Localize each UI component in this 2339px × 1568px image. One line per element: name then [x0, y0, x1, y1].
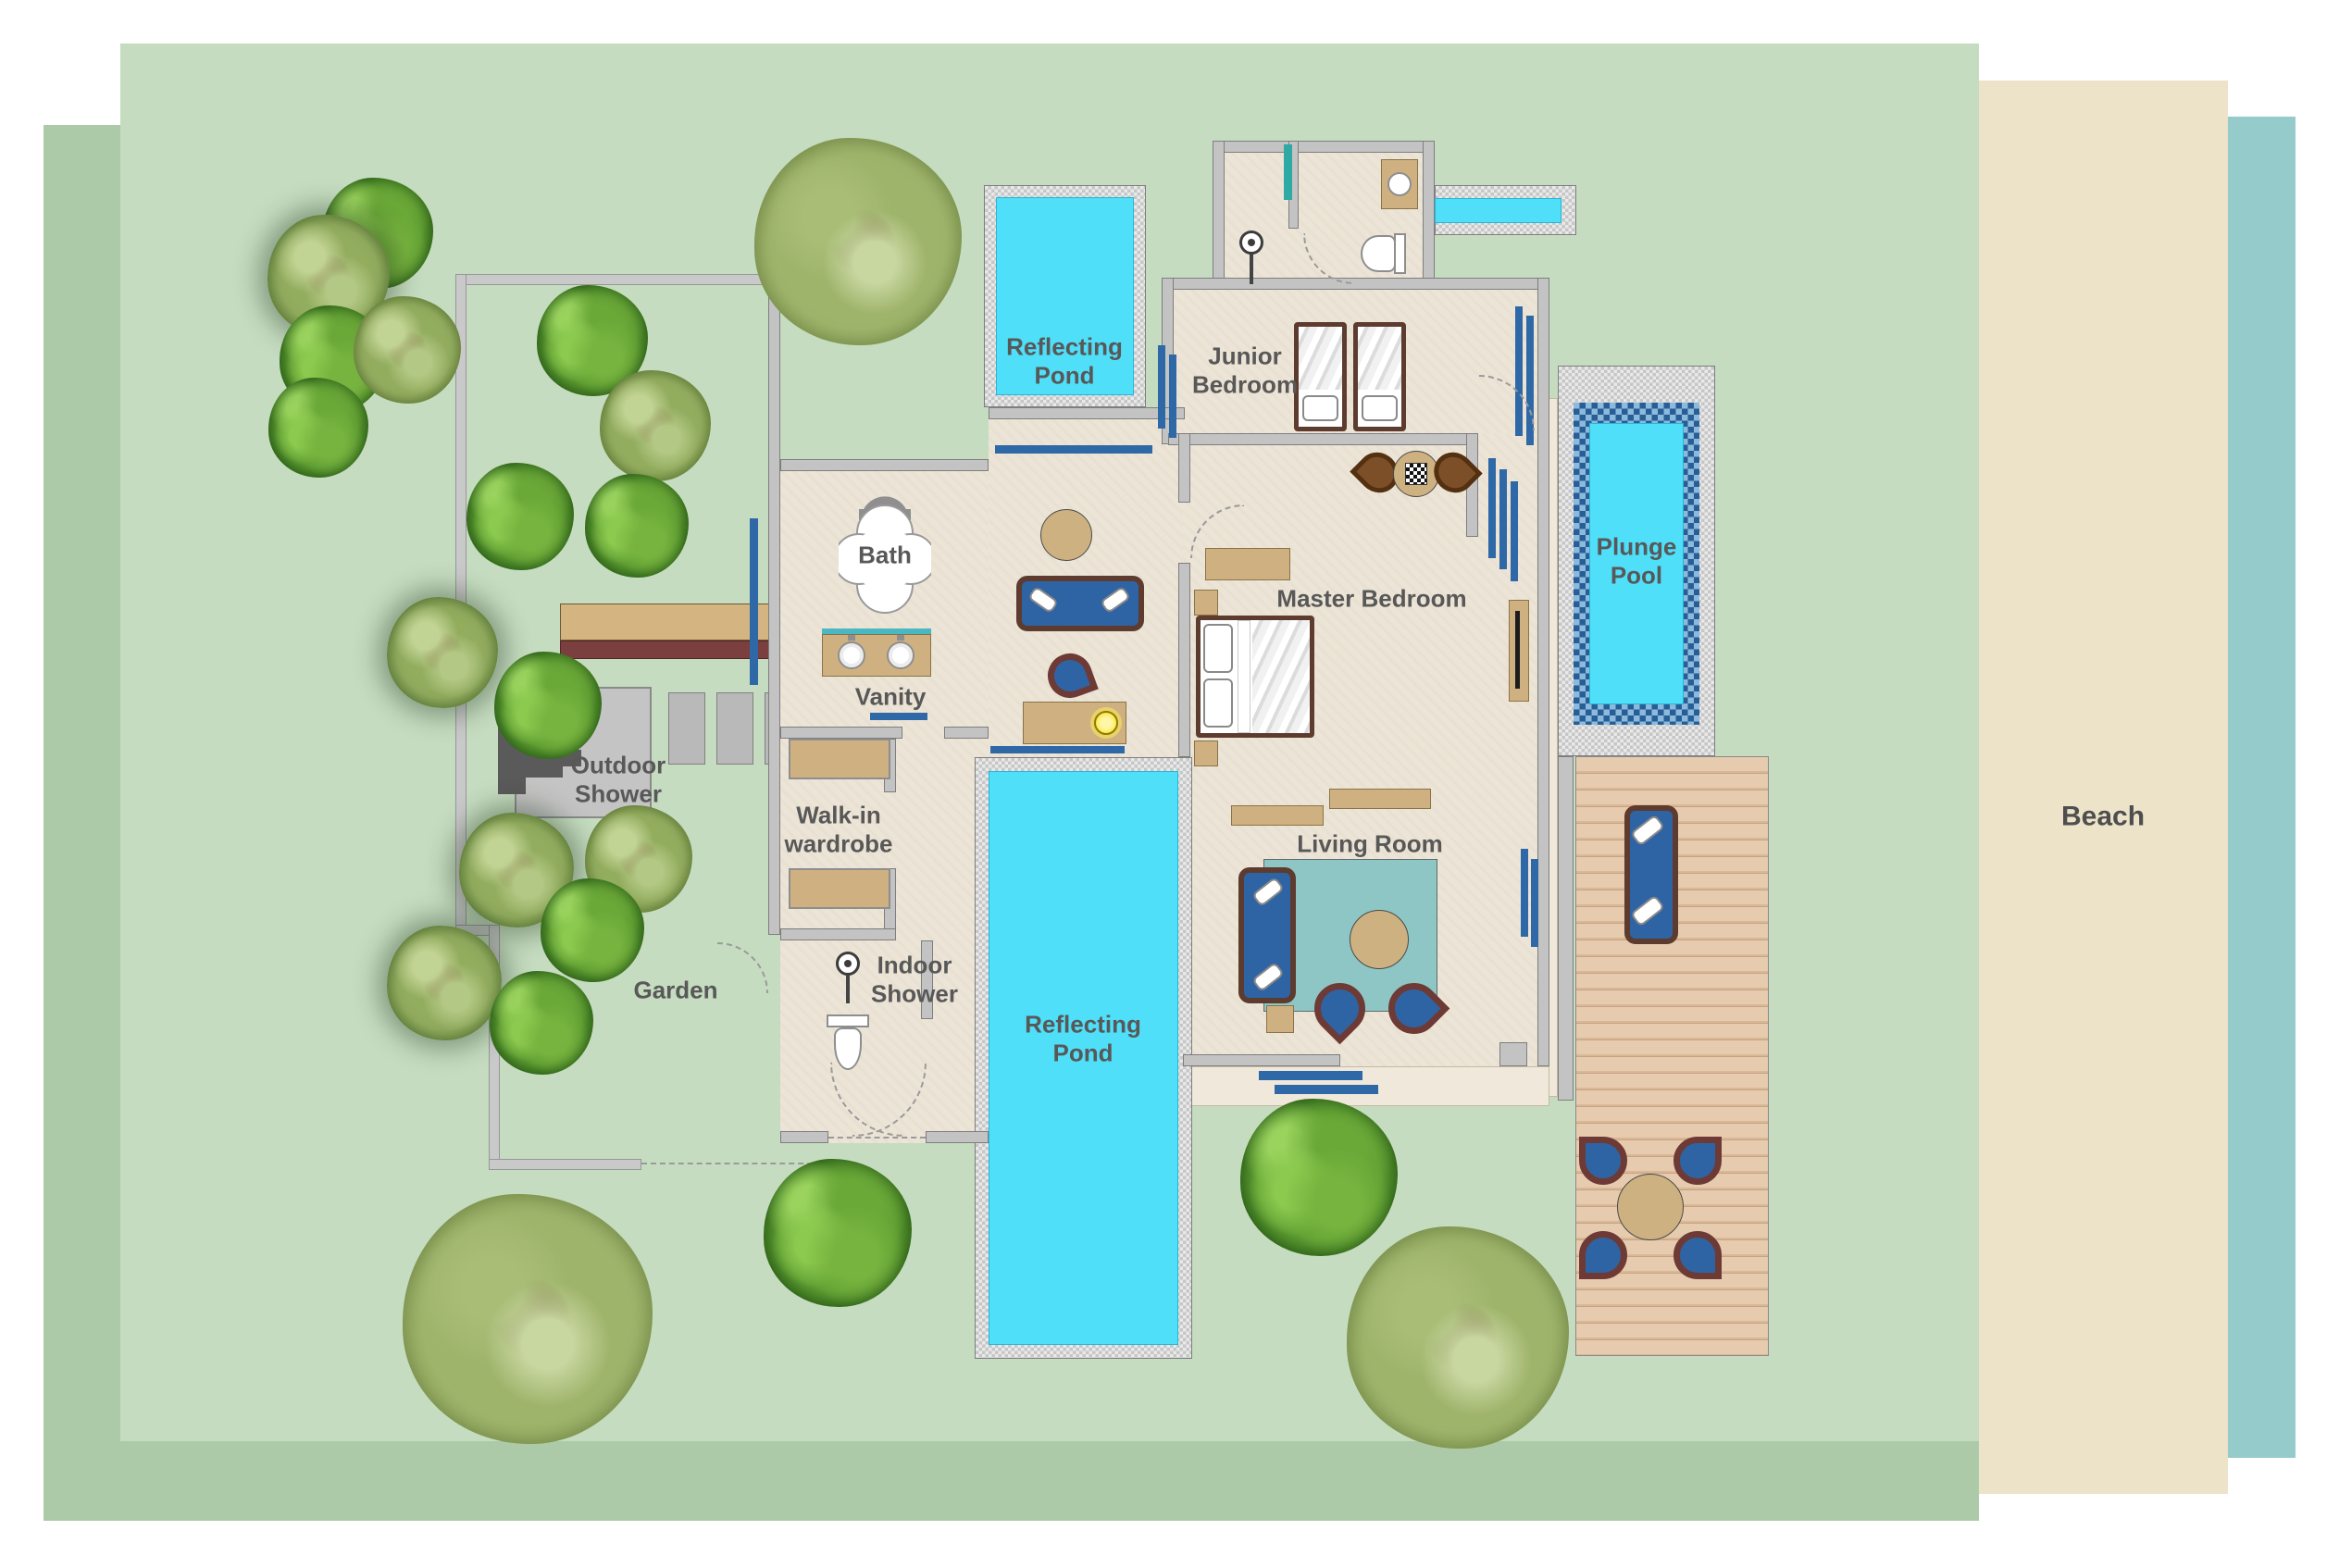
- window-bar: [1499, 469, 1507, 569]
- outdoor-dining-chair: [1579, 1137, 1627, 1185]
- south-wall-right: [926, 1131, 989, 1143]
- shower-head-dot-icon: [1248, 239, 1255, 246]
- tree: [387, 926, 502, 1040]
- junior-wall-north: [1168, 278, 1549, 290]
- round-stool: [1040, 509, 1092, 561]
- tree: [354, 296, 461, 404]
- bush: [585, 474, 689, 578]
- toilet-tank-icon: [827, 1014, 869, 1027]
- vanity-wall-south-left: [780, 727, 902, 739]
- deck-side-wall: [1558, 756, 1574, 1101]
- window-bar: [750, 518, 758, 685]
- daybed-pillow: [1100, 586, 1131, 614]
- bush: [467, 463, 574, 570]
- window-bar: [1259, 1071, 1362, 1080]
- twin-bed: [1353, 322, 1406, 431]
- tree: [387, 597, 498, 708]
- nightstand: [1194, 590, 1218, 616]
- outdoor-dining-table: [1617, 1174, 1684, 1240]
- label-junior-bedroom: Junior Bedroom: [1176, 342, 1314, 398]
- tree: [600, 370, 711, 481]
- outdoor-dining-chair: [1579, 1231, 1627, 1279]
- vanity-sink-icon: [887, 641, 914, 669]
- master-bed-mattress: [1252, 620, 1310, 733]
- tree: [403, 1194, 653, 1444]
- wall-east-exterior: [1537, 278, 1549, 1066]
- wall-study-master-divider-upper: [1178, 433, 1190, 503]
- console-table: [1231, 805, 1324, 826]
- entrance-dashed-opening: [828, 1137, 926, 1139]
- sink-basin-icon: [1387, 172, 1412, 196]
- shower-head-dot-icon: [844, 960, 852, 967]
- daybed-pillow: [1027, 586, 1059, 614]
- sofa: [1238, 867, 1296, 1003]
- sofa-pillow: [1251, 962, 1285, 992]
- nightstand: [1194, 740, 1218, 766]
- bush: [1240, 1099, 1398, 1256]
- label-plunge-pool: Plunge Pool: [1586, 532, 1687, 589]
- window-bar: [1531, 859, 1538, 947]
- shower-stem: [1250, 255, 1253, 284]
- label-outdoor-shower: Outdoor Shower: [540, 751, 697, 807]
- south-wall-left: [780, 1131, 828, 1143]
- toilet-bowl-icon: [1361, 235, 1396, 272]
- bush: [541, 878, 644, 982]
- label-reflecting-pond-bottom: Reflecting Pond: [1004, 1010, 1162, 1066]
- annex-wall-left: [1213, 141, 1225, 287]
- twin-bed-pillow: [1302, 395, 1338, 421]
- tree: [754, 138, 962, 345]
- living-wall-south: [1183, 1054, 1340, 1066]
- living-wall-corner-block: [1499, 1042, 1527, 1066]
- bush: [490, 971, 593, 1075]
- shower-stem: [846, 976, 850, 1003]
- outdoor-dining-chair: [1673, 1137, 1722, 1185]
- junior-wall-south: [1168, 433, 1478, 445]
- label-living-room: Living Room: [1259, 830, 1481, 859]
- vanity-wall-south-right: [944, 727, 989, 739]
- bush: [764, 1159, 912, 1307]
- label-beach: Beach: [2034, 800, 2172, 832]
- annex-wall-top: [1213, 141, 1435, 153]
- wardrobe-closet: [789, 868, 890, 909]
- annex-wall-right: [1423, 141, 1435, 287]
- daybed-bench: [1016, 576, 1144, 631]
- wardrobe-closet: [789, 739, 890, 779]
- master-bed-sheet: [1238, 620, 1250, 733]
- twin-bed-pillow: [1362, 395, 1398, 421]
- garden-fence-top: [455, 274, 780, 285]
- sea-strip: [2228, 117, 2295, 1458]
- stepping-stone: [716, 692, 753, 765]
- tree: [1347, 1226, 1569, 1449]
- window-bar: [1521, 849, 1528, 937]
- tv-icon: [1515, 611, 1520, 689]
- master-bed-pillow: [1203, 624, 1233, 673]
- label-master-bedroom: Master Bedroom: [1233, 585, 1511, 614]
- study-wall-north: [989, 407, 1185, 419]
- accent-underline-desk: [990, 746, 1125, 753]
- label-reflecting-pond-top: Reflecting Pond: [986, 332, 1143, 389]
- channel-water: [1435, 198, 1561, 223]
- master-bed: [1196, 616, 1314, 738]
- indoor-shower-wall-north: [780, 928, 896, 940]
- desk-lamp-icon: [1094, 711, 1118, 735]
- bush: [268, 378, 368, 478]
- bath-wall-north: [780, 459, 989, 471]
- bench-foot-of-bed: [1329, 789, 1431, 809]
- annex-glass-door: [1284, 144, 1292, 200]
- floor-plan-canvas: Reflecting Pond Junior Bedroom Bath Vani…: [0, 0, 2339, 1568]
- window-bar: [1275, 1085, 1378, 1094]
- garden-fence-bottom: [489, 1159, 641, 1170]
- master-bed-pillow: [1203, 678, 1233, 728]
- beach-strip: [1979, 81, 2228, 1494]
- garden-gate-dashed: [641, 1163, 831, 1164]
- ottoman-coffee-table: [1350, 910, 1409, 969]
- vanity-faucet-icon: [848, 635, 855, 641]
- wall-study-master-divider-lower: [1178, 563, 1190, 757]
- vanity-sink-icon: [838, 641, 865, 669]
- label-vanity: Vanity: [830, 683, 951, 712]
- label-indoor-shower: Indoor Shower: [857, 951, 973, 1007]
- window-bar: [1158, 345, 1165, 429]
- chess-board-icon: [1405, 463, 1427, 485]
- bush: [494, 652, 602, 759]
- window-bar: [1488, 458, 1496, 558]
- label-garden: Garden: [606, 977, 745, 1005]
- sofa-pillow: [1251, 877, 1285, 907]
- twin-bed-mattress: [1358, 327, 1401, 390]
- window-bar: [1511, 481, 1518, 581]
- window-bar: [995, 445, 1152, 454]
- accent-underline-vanity: [870, 713, 927, 720]
- label-walk-in-wardrobe: Walk-in wardrobe: [769, 801, 908, 857]
- outdoor-dining-chair: [1673, 1231, 1722, 1279]
- vanity-faucet-icon: [897, 635, 904, 641]
- label-bath: Bath: [839, 541, 931, 570]
- side-table: [1266, 1005, 1294, 1033]
